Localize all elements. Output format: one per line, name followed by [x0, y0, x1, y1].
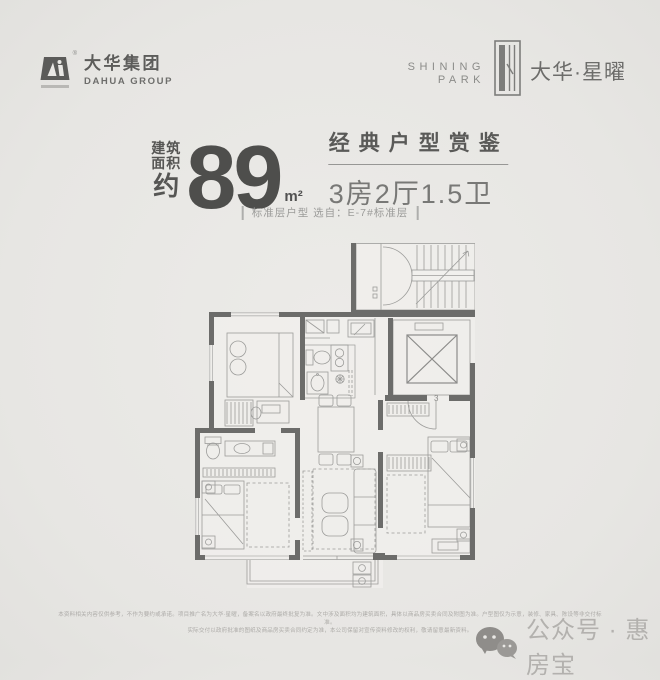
emblem-small-text-bar [41, 85, 69, 88]
area-labels: 建筑 面积 约 [151, 141, 181, 200]
area-label-1: 建筑 [151, 141, 181, 156]
area-label-3: 约 [153, 172, 179, 200]
dahua-name-cn: 大华集团 [84, 54, 173, 73]
project-name-en: SHINING PARK [408, 61, 485, 87]
project-en-line2: PARK [408, 74, 485, 87]
entry-label: 3 [434, 394, 439, 403]
wechat-bubbles-icon [474, 623, 520, 668]
watermark: 公众号 · 惠房宝 [474, 610, 660, 680]
floor-plan: 3 [185, 243, 475, 593]
floor-selection-subtitle: 标准层户型 选自：E-7#标准层 [242, 206, 419, 220]
subtitle-row: 标准层户型 选自：E-7#标准层 [242, 203, 419, 221]
project-logo: SHINING PARK 大华·星曜 [408, 40, 626, 101]
dahua-group-logo: ® 大华集团 DAHUA GROUP [40, 54, 173, 88]
project-mark-icon [494, 40, 521, 101]
series-title: 经典户型赏鉴 [329, 127, 509, 165]
dahua-emblem-icon: ® [40, 54, 72, 88]
headline: 建筑 面积 约 89 m² 经典户型赏鉴 3房2厅1.5卫 [151, 127, 508, 213]
registered-mark: ® [73, 51, 77, 57]
project-name-cn: 大华·星曜 [530, 56, 626, 86]
project-en-line1: SHINING [408, 61, 485, 74]
spec-group: 经典户型赏鉴 3房2厅1.5卫 [329, 127, 509, 211]
dahua-name-en: DAHUA GROUP [84, 76, 173, 87]
area-label-2: 面积 [151, 156, 181, 171]
watermark-text: 公众号 · 惠房宝 [526, 610, 660, 680]
